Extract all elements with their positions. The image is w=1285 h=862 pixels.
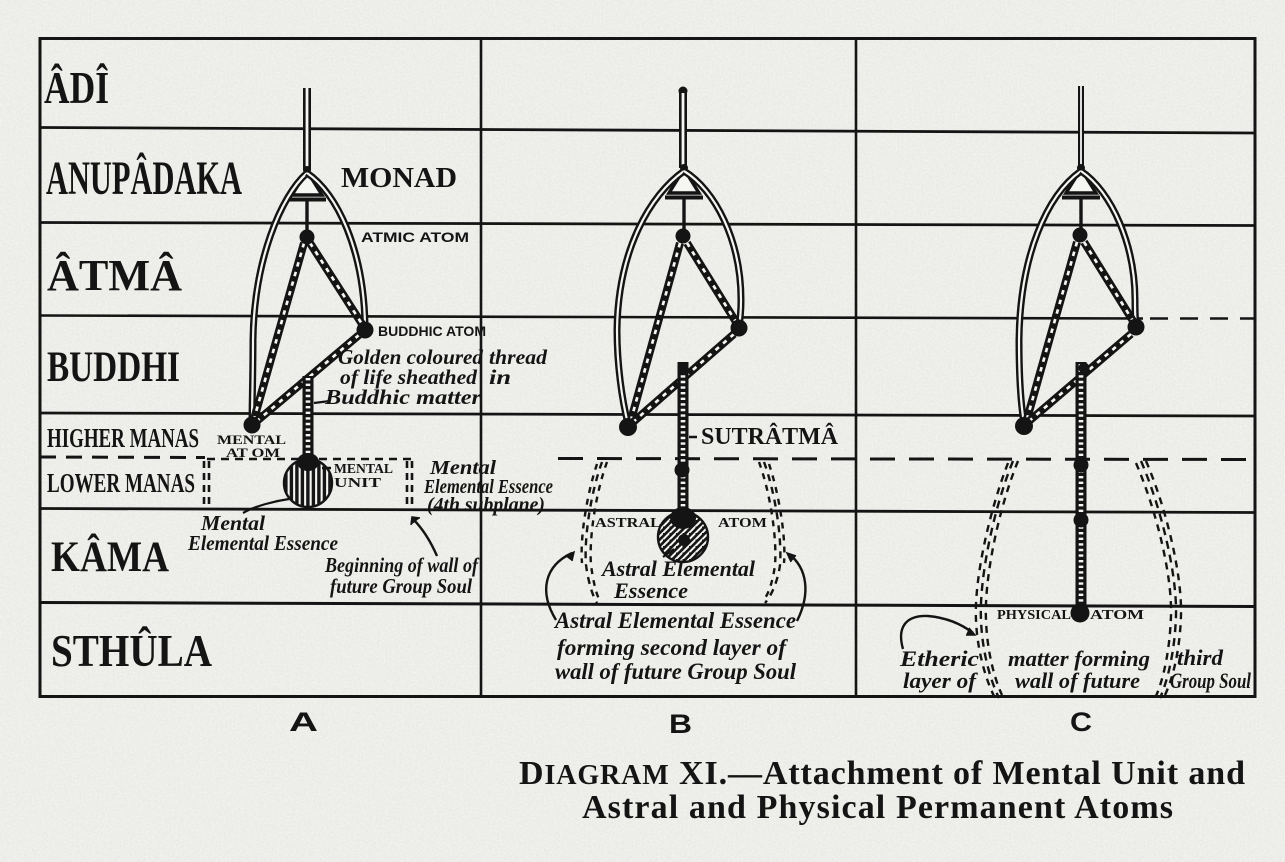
svg-text:Group Soul: Group Soul: [1170, 668, 1252, 693]
svg-text:ATOM: ATOM: [1090, 608, 1144, 623]
svg-text:DIAGRAM XI.—Attachment of Ment: DIAGRAM XI.—Attachment of Mental Unit an…: [519, 755, 1245, 792]
svg-text:Essence: Essence: [613, 578, 688, 603]
svg-text:SUTRÂTMÂ: SUTRÂTMÂ: [701, 423, 839, 450]
svg-text:ÂDÎ: ÂDÎ: [44, 62, 109, 113]
svg-text:MENTAL: MENTAL: [334, 461, 393, 476]
svg-text:wall of future Group Soul: wall of future Group Soul: [555, 659, 797, 684]
svg-text:third: third: [1177, 645, 1224, 670]
svg-text:LOWER MANAS: LOWER MANAS: [47, 468, 195, 498]
svg-text:C: C: [1070, 707, 1092, 737]
svg-text:UNIT: UNIT: [334, 475, 381, 490]
svg-text:ASTRAL: ASTRAL: [595, 516, 661, 531]
svg-text:KÂMA: KÂMA: [51, 534, 169, 581]
svg-text:AT OM: AT OM: [226, 445, 280, 460]
svg-text:STHÛLA: STHÛLA: [51, 625, 212, 676]
svg-text:B: B: [669, 709, 692, 739]
svg-text:ATOM: ATOM: [718, 516, 767, 531]
svg-text:in: in: [489, 365, 511, 389]
svg-text:BUDDHI: BUDDHI: [47, 344, 180, 391]
svg-text:ÂTMÂ: ÂTMÂ: [47, 251, 182, 300]
svg-text:HIGHER MANAS: HIGHER MANAS: [47, 423, 199, 453]
svg-text:layer of: layer of: [903, 668, 979, 693]
svg-text:A: A: [289, 707, 318, 737]
svg-text:PHYSICAL: PHYSICAL: [997, 608, 1071, 623]
svg-text:Elemental Essence: Elemental Essence: [187, 531, 338, 555]
svg-text:ANUPÂDAKA: ANUPÂDAKA: [46, 151, 242, 205]
svg-text:future Group Soul: future Group Soul: [330, 574, 472, 598]
svg-text:wall of future: wall of future: [1015, 668, 1140, 693]
svg-text:BUDDHIC ATOM: BUDDHIC ATOM: [378, 324, 486, 339]
svg-text:Astral and Physical Permanent: Astral and Physical Permanent Atoms: [582, 789, 1173, 826]
svg-text:(4th subplane): (4th subplane): [427, 494, 545, 516]
svg-text:MONAD: MONAD: [341, 162, 457, 194]
svg-text:Buddhic matter: Buddhic matter: [324, 385, 482, 409]
svg-text:ATMIC ATOM: ATMIC ATOM: [361, 229, 469, 245]
svg-text:forming second layer of: forming second layer of: [557, 635, 788, 660]
svg-text:Astral Elemental Essence: Astral Elemental Essence: [553, 608, 796, 633]
